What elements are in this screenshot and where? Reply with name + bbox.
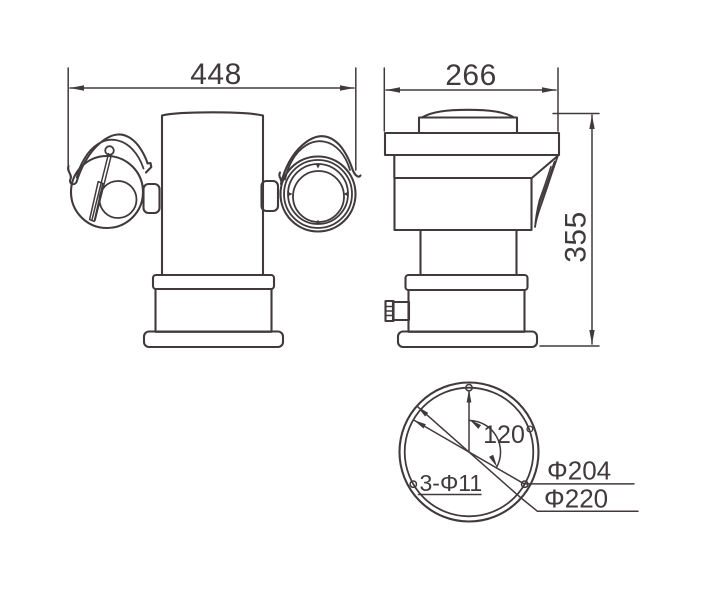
neck-column <box>421 230 517 275</box>
base-plate <box>398 332 537 348</box>
base-flange <box>153 275 274 289</box>
wiper-pivot <box>105 146 114 155</box>
side-height-value: 355 <box>560 211 593 263</box>
bottom-view: 120° 3-Φ11 Φ204 Φ220 <box>400 383 639 522</box>
mount-holes-callout: 3-Φ11 <box>419 470 483 496</box>
front-width-dimension: 448 <box>68 58 356 170</box>
base-flange <box>406 275 528 290</box>
outer-circle-value: Φ220 <box>544 484 608 514</box>
lens-inner-ring <box>100 181 137 218</box>
bolt-circle-callout: Φ204 <box>525 456 634 486</box>
base-plate <box>144 332 283 348</box>
hood-band <box>385 133 559 155</box>
wiper-arm-edge <box>92 154 109 220</box>
bolt-circle-diameter-arrow <box>413 420 426 429</box>
lens-tick-ring <box>288 164 348 224</box>
arrowhead-left <box>70 85 84 90</box>
front-view: 448 <box>68 58 360 347</box>
lens-glass <box>293 171 344 222</box>
arrowhead-right <box>340 85 354 90</box>
base-block <box>156 289 272 332</box>
left-mount-bracket <box>144 184 160 213</box>
mount-holes-value: 3-Φ11 <box>420 470 483 496</box>
left-camera-housing <box>68 134 151 228</box>
arrowhead-right <box>542 87 556 92</box>
technical-drawing-page: 448 <box>0 0 710 592</box>
side-width-dimension: 266 <box>384 59 558 131</box>
camera-dimensional-drawing: 448 <box>0 0 710 592</box>
arrowhead-left <box>386 87 400 92</box>
main-body-block <box>395 178 532 230</box>
angle-value: 120° <box>483 421 535 449</box>
base-block <box>409 290 525 332</box>
radius-arrow-top <box>467 390 472 403</box>
tick-top <box>316 164 321 169</box>
side-body <box>385 110 559 347</box>
arrowhead-bottom <box>589 330 594 344</box>
pan-tilt-column <box>144 112 284 347</box>
front-width-value: 448 <box>190 58 242 91</box>
visor-fin-outer <box>535 157 558 227</box>
head-block <box>419 118 517 134</box>
side-width-value: 266 <box>445 59 497 92</box>
outer-circle-callout: Φ220 <box>521 484 638 514</box>
lens-window <box>71 156 143 228</box>
side-height-dimension: 355 <box>540 114 599 347</box>
bolt-circle-value: Φ204 <box>547 456 611 486</box>
side-view: 266 355 <box>384 59 599 347</box>
cable-gland-body <box>393 302 409 320</box>
head-dome <box>423 110 514 117</box>
right-camera-housing <box>279 136 360 231</box>
arrowhead-top <box>589 115 594 129</box>
column-outline <box>162 112 263 275</box>
tick-left <box>288 192 293 197</box>
cable-gland-ribs <box>387 307 393 316</box>
